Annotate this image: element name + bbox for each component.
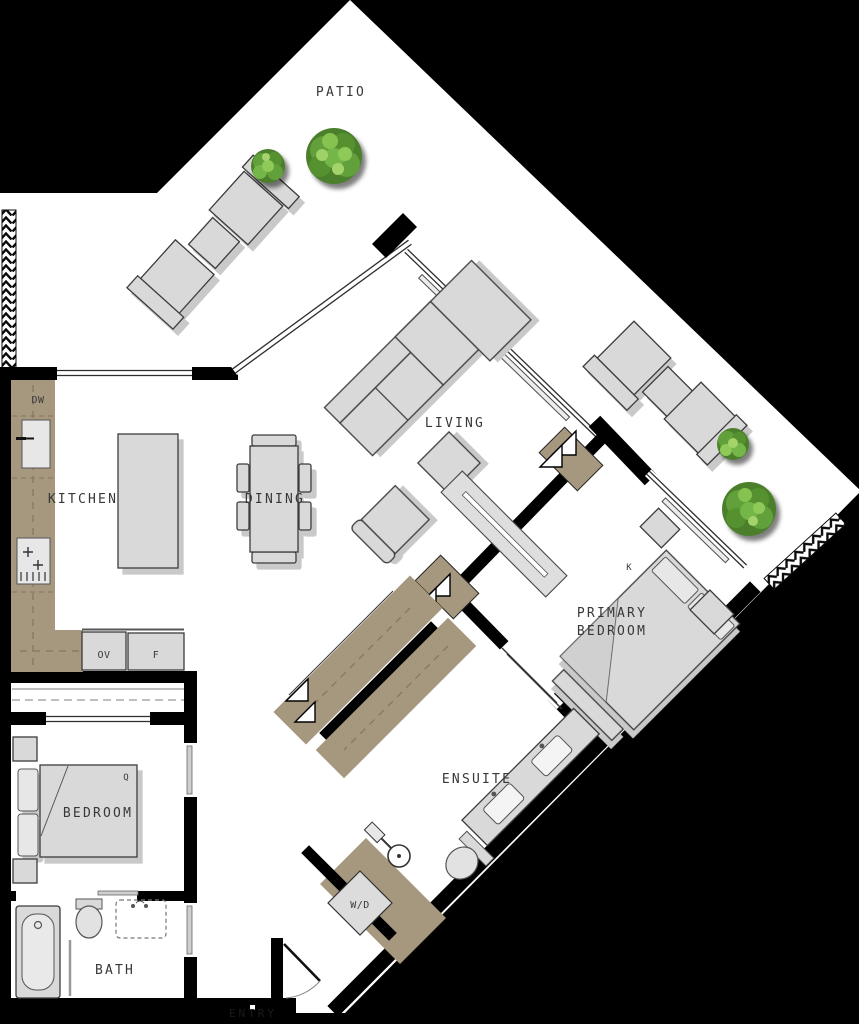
room-label-primary-line2: BEDROOM bbox=[577, 624, 647, 639]
dining-chair bbox=[252, 552, 296, 563]
tree-icon bbox=[306, 128, 362, 184]
nightstand bbox=[13, 737, 37, 761]
kitchen-island bbox=[118, 434, 178, 568]
room-label-bedroom: BEDROOM bbox=[63, 806, 133, 821]
appliance-label-oven: OV bbox=[97, 650, 110, 661]
bed-size-label-queen: Q bbox=[123, 773, 128, 783]
room-label-dining: DINING bbox=[245, 492, 305, 507]
tree-icon bbox=[717, 428, 749, 460]
dining-chair bbox=[237, 464, 249, 492]
toilet bbox=[76, 899, 102, 938]
appliance-label-washer-dryer: W/D bbox=[350, 900, 370, 911]
bed-size-label-king: K bbox=[626, 563, 632, 573]
room-label-bath: BATH bbox=[95, 963, 135, 978]
appliance-label-dishwasher: DW bbox=[31, 395, 45, 406]
door-panel bbox=[98, 891, 138, 895]
room-label-ensuite: ENSUITE bbox=[442, 772, 512, 787]
cooktop bbox=[17, 538, 50, 584]
floor-plan-svg: PATIO bbox=[0, 0, 859, 1024]
room-label-patio: PATIO bbox=[316, 85, 366, 100]
door-panel bbox=[187, 746, 192, 794]
room-label-entry: ENTRY bbox=[229, 1007, 277, 1020]
bathtub bbox=[16, 906, 60, 998]
dining-chair bbox=[252, 435, 296, 446]
room-label-primary-line1: PRIMARY bbox=[577, 606, 647, 621]
tree-icon bbox=[722, 482, 776, 536]
nightstand bbox=[13, 859, 37, 883]
tree-icon bbox=[251, 149, 285, 183]
dining-chair bbox=[299, 464, 311, 492]
room-label-living: LIVING bbox=[425, 416, 485, 431]
door-panel bbox=[187, 906, 192, 954]
floor-plan: PATIO bbox=[0, 0, 859, 1024]
room-label-kitchen: KITCHEN bbox=[48, 492, 118, 507]
appliance-label-fridge: F bbox=[153, 650, 160, 661]
